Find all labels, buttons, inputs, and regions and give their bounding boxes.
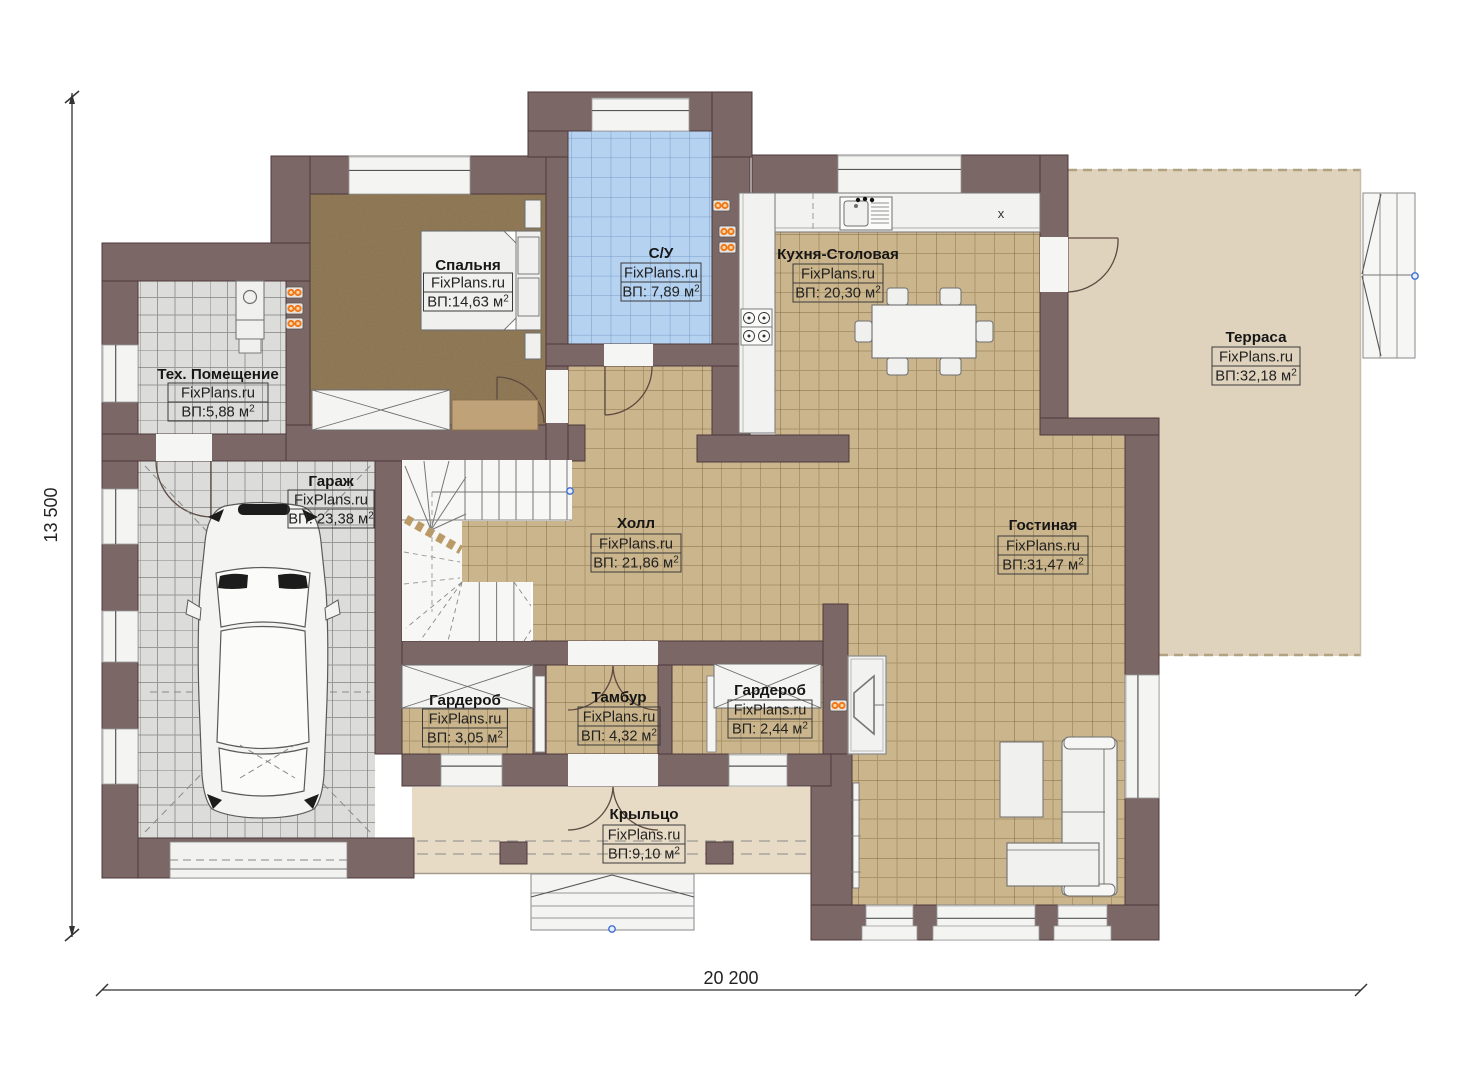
svg-text:ВП: 2,44 м2: ВП: 2,44 м2 bbox=[732, 721, 808, 738]
svg-text:FixPlans.ru: FixPlans.ru bbox=[734, 703, 807, 719]
svg-text:FixPlans.ru: FixPlans.ru bbox=[1006, 539, 1080, 555]
svg-text:Холл: Холл bbox=[617, 515, 655, 532]
svg-text:13 500: 13 500 bbox=[41, 487, 61, 542]
svg-text:ВП: 3,05 м2: ВП: 3,05 м2 bbox=[427, 730, 503, 747]
svg-text:FixPlans.ru: FixPlans.ru bbox=[294, 493, 368, 509]
svg-text:FixPlans.ru: FixPlans.ru bbox=[431, 276, 505, 292]
svg-text:FixPlans.ru: FixPlans.ru bbox=[1219, 350, 1293, 366]
svg-text:x: x bbox=[998, 206, 1005, 221]
svg-text:Гардероб: Гардероб bbox=[429, 692, 501, 709]
svg-text:ВП: 4,32 м2: ВП: 4,32 м2 bbox=[581, 728, 657, 745]
svg-text:ВП:31,47 м2: ВП:31,47 м2 bbox=[1002, 557, 1084, 574]
svg-text:Тамбур: Тамбур bbox=[591, 689, 646, 706]
svg-text:FixPlans.ru: FixPlans.ru bbox=[583, 710, 656, 726]
svg-text:Гостиная: Гостиная bbox=[1009, 517, 1078, 534]
svg-text:Гараж: Гараж bbox=[308, 473, 354, 490]
svg-text:ВП:9,10 м2: ВП:9,10 м2 bbox=[608, 846, 680, 863]
svg-text:Тех. Помещение: Тех. Помещение bbox=[157, 366, 279, 383]
svg-text:Гардероб: Гардероб bbox=[734, 682, 806, 699]
svg-text:С/У: С/У bbox=[649, 245, 674, 262]
svg-text:Крыльцо: Крыльцо bbox=[609, 806, 678, 823]
svg-text:ВП: 23,38 м2: ВП: 23,38 м2 bbox=[288, 511, 374, 528]
svg-text:FixPlans.ru: FixPlans.ru bbox=[429, 712, 502, 728]
svg-text:ВП: 20,30 м2: ВП: 20,30 м2 bbox=[795, 285, 881, 302]
svg-text:20 200: 20 200 bbox=[703, 968, 758, 988]
svg-text:ВП:5,88 м2: ВП:5,88 м2 bbox=[181, 404, 255, 421]
svg-text:FixPlans.ru: FixPlans.ru bbox=[599, 537, 673, 553]
svg-text:Спальня: Спальня bbox=[435, 257, 501, 274]
svg-text:FixPlans.ru: FixPlans.ru bbox=[801, 267, 875, 283]
svg-text:FixPlans.ru: FixPlans.ru bbox=[608, 828, 681, 844]
svg-text:FixPlans.ru: FixPlans.ru bbox=[624, 266, 698, 282]
svg-text:ВП:32,18 м2: ВП:32,18 м2 bbox=[1215, 368, 1297, 385]
svg-text:Кухня-Столовая: Кухня-Столовая bbox=[777, 246, 899, 263]
svg-text:Терраса: Терраса bbox=[1225, 329, 1287, 346]
svg-text:ВП:14,63 м2: ВП:14,63 м2 bbox=[427, 294, 509, 311]
svg-text:ВП: 7,89 м2: ВП: 7,89 м2 bbox=[622, 284, 700, 301]
svg-text:ВП: 21,86 м2: ВП: 21,86 м2 bbox=[593, 555, 679, 572]
svg-text:FixPlans.ru: FixPlans.ru bbox=[181, 386, 255, 402]
